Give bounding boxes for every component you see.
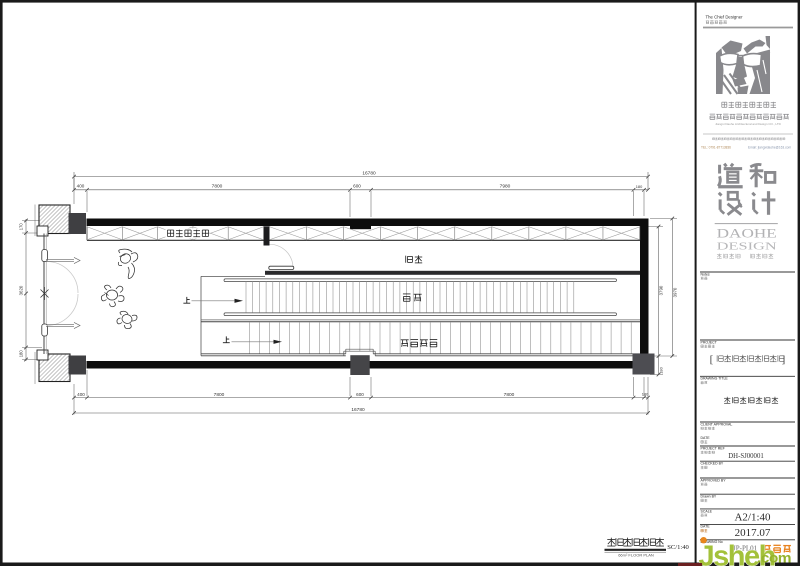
svg-text:3790: 3790 [659, 285, 664, 295]
svg-text:CLIENT APPROVAL: CLIENT APPROVAL [701, 422, 733, 426]
svg-text:Notes: Notes [701, 272, 710, 276]
svg-text:7800: 7800 [214, 392, 225, 398]
svg-text:Jiangxi Daohe Architectural an: Jiangxi Daohe Architectural and Design C… [715, 122, 781, 126]
svg-text:The Chief Designer: The Chief Designer [706, 14, 744, 19]
svg-text:DH-SJ00001: DH-SJ00001 [728, 453, 764, 460]
svg-text:600: 600 [356, 392, 364, 397]
svg-text:Drawn BY: Drawn BY [701, 495, 717, 499]
svg-text:16780: 16780 [351, 407, 365, 413]
svg-text:7980: 7980 [500, 184, 511, 190]
svg-text:]: ] [782, 354, 786, 366]
svg-text:400: 400 [77, 392, 85, 397]
svg-text:DRAWING TITLE: DRAWING TITLE [701, 377, 729, 381]
svg-text:CHECKED BY: CHECKED BY [701, 462, 724, 466]
svg-text:400: 400 [77, 184, 85, 189]
svg-text:[: [ [710, 354, 714, 366]
svg-text:7800: 7800 [504, 392, 515, 398]
svg-text:180: 180 [18, 350, 23, 358]
svg-text:DAOHE: DAOHE [717, 226, 777, 240]
svg-text:PROJECT REF: PROJECT REF [701, 446, 725, 450]
svg-text:3620: 3620 [18, 285, 23, 295]
svg-text:DATE: DATE [701, 436, 711, 440]
svg-text:2017.07: 2017.07 [735, 527, 771, 539]
svg-text:180: 180 [636, 184, 643, 189]
svg-text:DESIGN: DESIGN [717, 241, 777, 253]
svg-text:PROJECT: PROJECT [701, 340, 718, 344]
svg-text:Email: jiangxidaohe@163.com: Email: jiangxidaohe@163.com [748, 145, 791, 149]
svg-text:SCALE: SCALE [701, 509, 713, 513]
svg-text:170: 170 [18, 223, 23, 231]
svg-text:APPROVED BY: APPROVED BY [701, 478, 727, 482]
svg-text:TEL: 0791-87713836: TEL: 0791-87713836 [701, 145, 731, 149]
svg-text:600: 600 [353, 184, 361, 189]
svg-text:7800: 7800 [212, 184, 223, 190]
svg-text:DATE: DATE [701, 525, 711, 529]
svg-text:.com: .com [757, 550, 791, 566]
svg-text:3970: 3970 [672, 287, 677, 297]
svg-text:66m² FLOOR PLAN: 66m² FLOOR PLAN [618, 553, 654, 558]
svg-text:SC/1:40: SC/1:40 [667, 544, 689, 551]
svg-text:16780: 16780 [362, 171, 376, 177]
svg-text:A2/1:40: A2/1:40 [734, 511, 771, 523]
svg-text:180: 180 [659, 366, 664, 373]
